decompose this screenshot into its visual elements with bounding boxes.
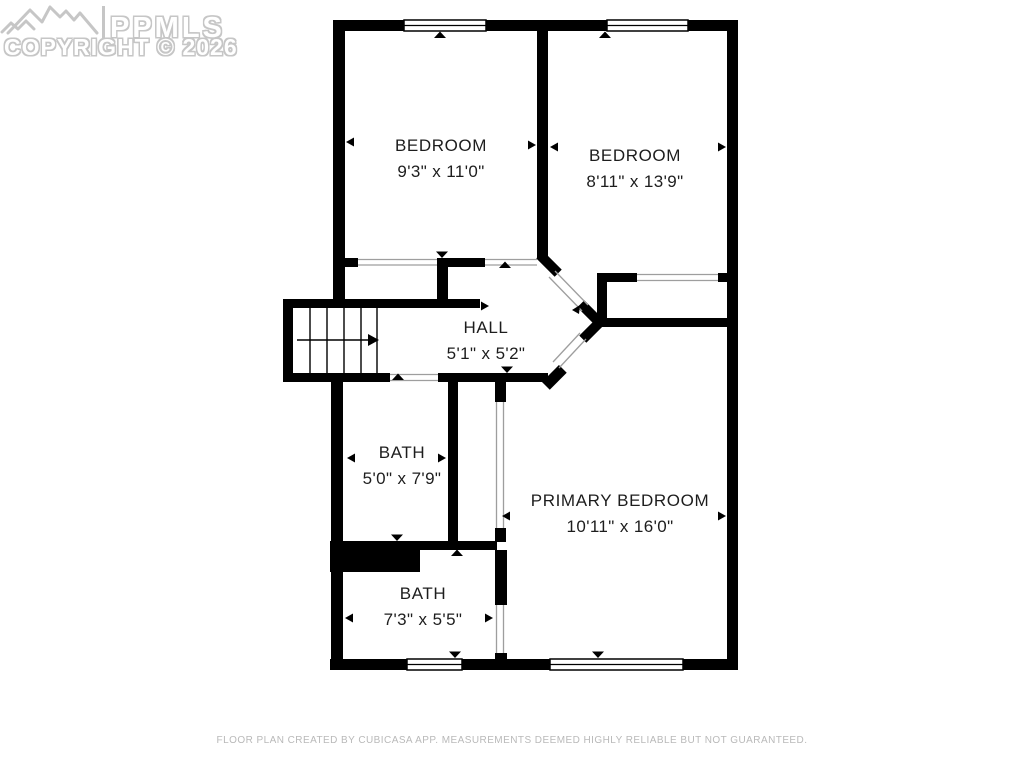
floor-plan-page: PPMLS COPYRIGHT © 2026 — [0, 0, 1024, 767]
room-label-primary-bedroom: PRIMARY BEDROOM 10'11" x 16'0" — [531, 488, 709, 540]
room-label-bedroom-2: BEDROOM 8'11" x 13'9" — [586, 143, 683, 195]
room-dimensions: 9'3" x 11'0" — [395, 159, 487, 185]
room-name: BEDROOM — [586, 143, 683, 169]
footer-disclaimer: FLOOR PLAN CREATED BY CUBICASA APP. MEAS… — [0, 735, 1024, 746]
diagonal-door-jambs — [536, 251, 604, 389]
staircase — [297, 308, 379, 373]
room-dimensions: 8'11" x 13'9" — [586, 169, 683, 195]
room-name: BEDROOM — [395, 133, 487, 159]
room-name: PRIMARY BEDROOM — [531, 488, 709, 514]
room-dimensions: 5'0" x 7'9" — [363, 466, 442, 492]
room-name: BATH — [384, 581, 463, 607]
room-dimensions: 10'11" x 16'0" — [531, 514, 709, 540]
room-name: HALL — [447, 315, 526, 341]
room-label-hall: HALL 5'1" x 5'2" — [447, 315, 526, 367]
room-label-bath-upper: BATH 5'0" x 7'9" — [363, 440, 442, 492]
room-label-bedroom-1: BEDROOM 9'3" x 11'0" — [395, 133, 487, 185]
room-dimensions: 5'1" x 5'2" — [447, 341, 526, 367]
room-dimensions: 7'3" x 5'5" — [384, 607, 463, 633]
room-label-bath-lower: BATH 7'3" x 5'5" — [384, 581, 463, 633]
floor-plan-drawing — [0, 0, 1024, 767]
room-name: BATH — [363, 440, 442, 466]
